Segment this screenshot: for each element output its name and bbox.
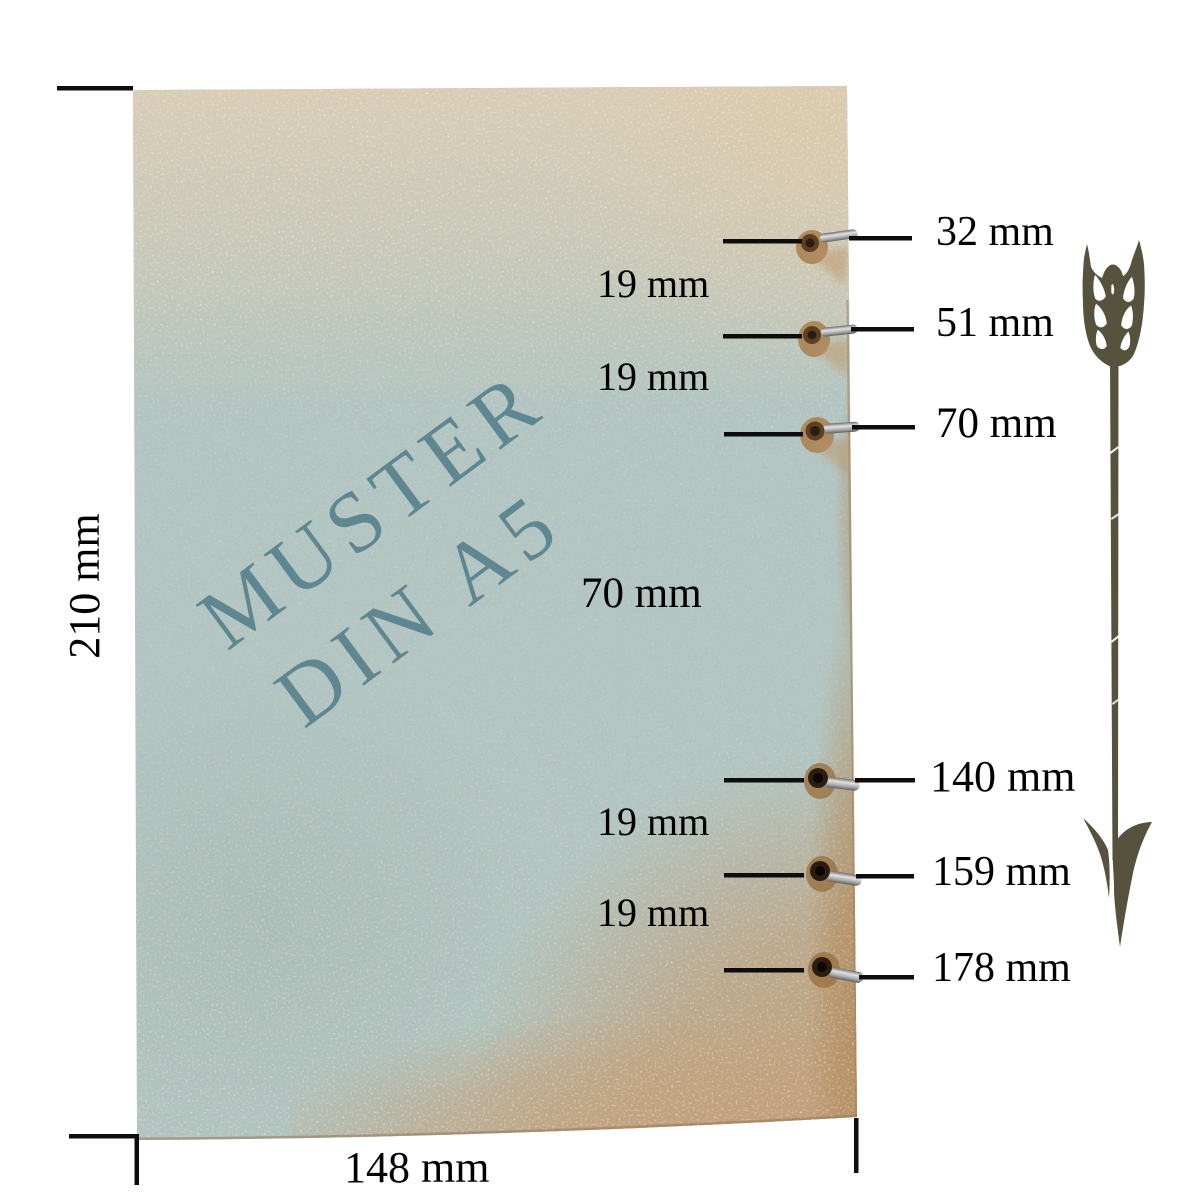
svg-text:70 mm: 70 mm	[936, 400, 1057, 447]
svg-text:19 mm: 19 mm	[597, 261, 709, 306]
svg-text:32 mm: 32 mm	[936, 209, 1054, 255]
svg-text:140 mm: 140 mm	[930, 752, 1075, 801]
svg-text:51 mm: 51 mm	[936, 300, 1054, 346]
svg-text:159 mm: 159 mm	[932, 849, 1071, 895]
svg-text:19 mm: 19 mm	[597, 890, 709, 935]
svg-text:70 mm: 70 mm	[581, 570, 702, 617]
svg-text:178 mm: 178 mm	[932, 945, 1071, 991]
svg-text:19 mm: 19 mm	[597, 799, 709, 844]
svg-text:19 mm: 19 mm	[597, 354, 709, 399]
svg-text:210 mm: 210 mm	[60, 513, 109, 658]
svg-text:148 mm: 148 mm	[344, 1143, 489, 1192]
